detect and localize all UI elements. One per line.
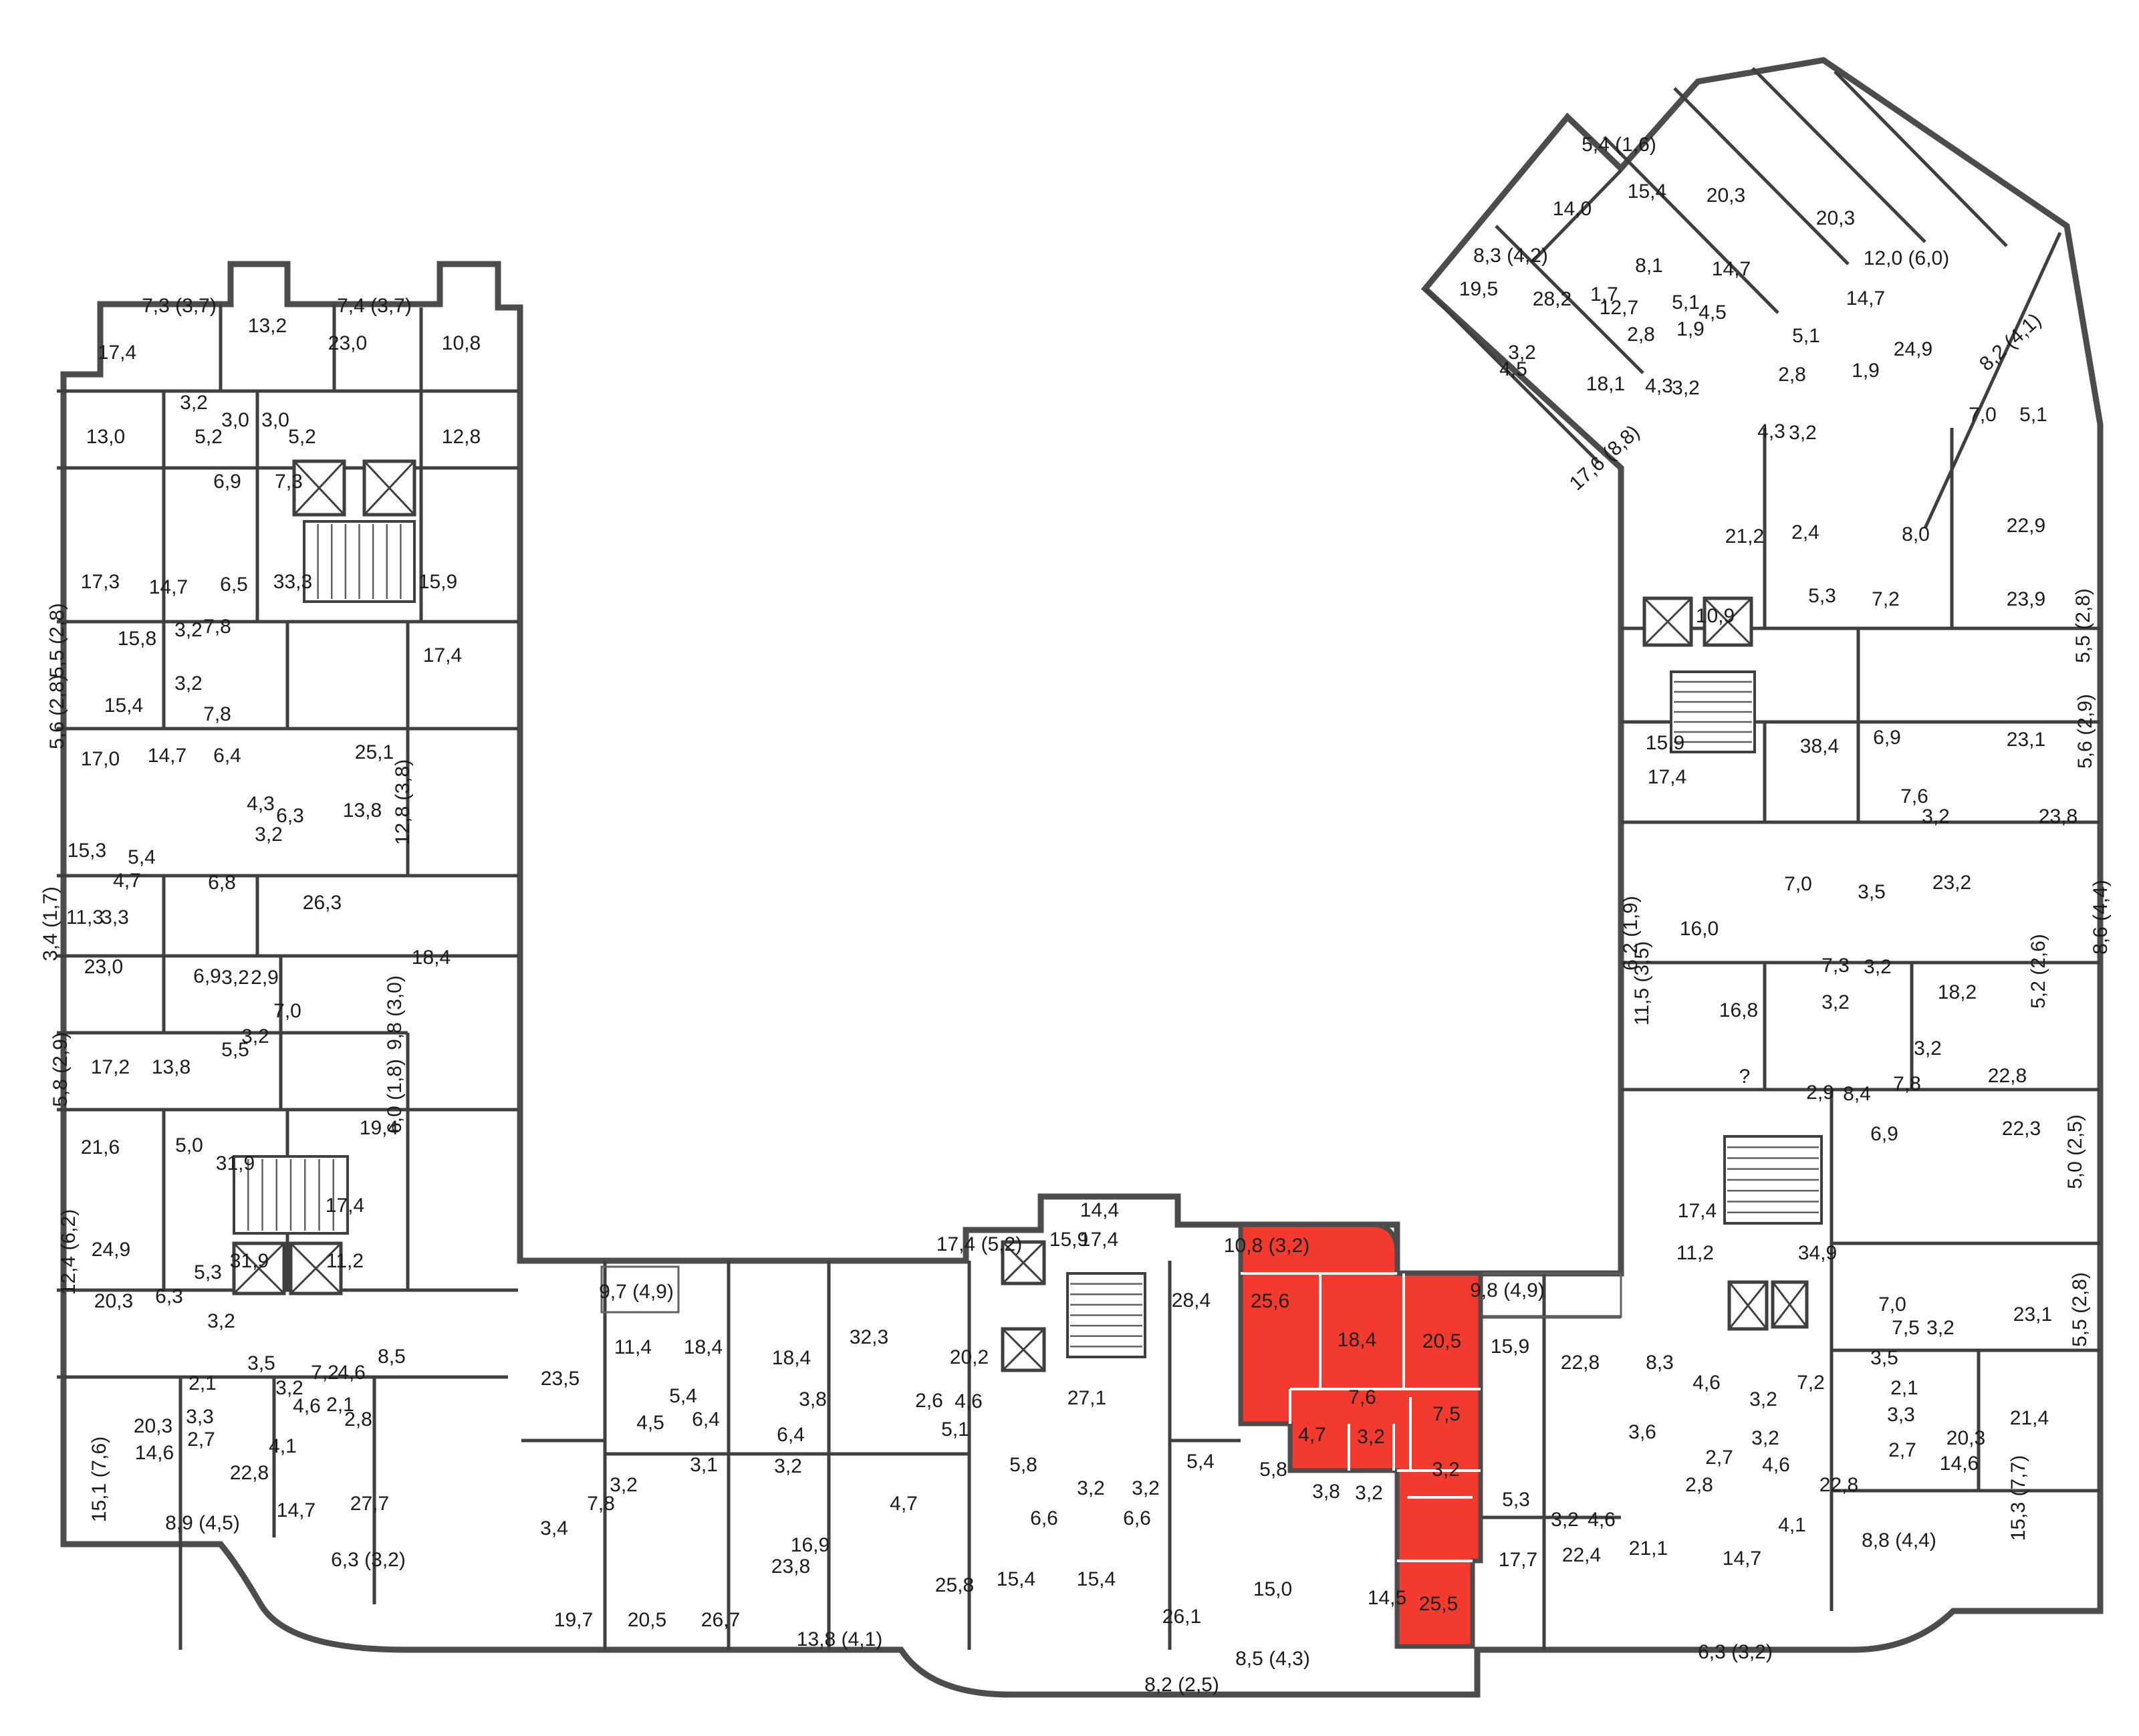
room-area-label-highlighted: 4,7 [1298,1424,1326,1446]
room-area-label: 3,1 [690,1454,718,1476]
room-area-label: 4,6 [293,1395,321,1417]
room-area-label: 3,2 [207,1310,235,1332]
room-area-label: 18,4 [772,1347,811,1369]
room-area-label: 15,4 [1628,180,1666,203]
room-area-label: 14,5 [1368,1587,1406,1609]
room-area-label: 4,3 [1757,420,1785,443]
room-area-label: 21,1 [1629,1537,1668,1560]
room-area-label: 14,6 [1940,1453,1979,1475]
room-area-label: 5,2 (2,6) [2027,934,2049,1009]
room-area-label: 15,8 [118,628,156,650]
room-area-label: 6,4 [213,745,241,767]
room-area-label: 23,9 [2007,588,2045,610]
room-area-label: 26,7 [701,1609,740,1631]
room-area-label: 19,4 [360,1117,398,1139]
room-area-label: 2,4 [1791,521,1819,543]
room-area-label: 17,4 (5,2) [936,1233,1022,1255]
room-area-label: 28,4 [1172,1289,1211,1312]
room-area-label: 34,9 [1798,1242,1837,1264]
room-area-label: 16,9 [791,1534,830,1556]
room-area-label: 25,8 [935,1574,974,1596]
room-area-label: 12,8 (3,8) [392,759,414,845]
room-area-label-highlighted: 3,2 [1432,1459,1460,1481]
room-area-label: 21,6 [81,1136,120,1158]
room-area-label: 5,1 [2019,404,2047,426]
room-area-label: 5,5 (2,8) [2072,588,2094,663]
room-area-label: 7,0 [1969,404,1997,426]
room-area-label: 11,2 [326,1250,364,1272]
room-area-label: 23,0 [84,956,123,978]
room-area-label: 4,3 [247,793,275,815]
room-area-label: 2,6 [915,1390,943,1412]
room-area-label: 3,2 [1672,377,1700,399]
room-area-label: 3,2 [1751,1427,1779,1449]
room-area-label: 17,7 [1499,1549,1537,1571]
room-area-label: 5,0 (2,5) [2064,1114,2086,1189]
room-area-label: 14,7 [277,1499,316,1521]
room-area-label: 8,4 [1843,1083,1871,1105]
room-area-label: 3,2 [1077,1477,1105,1499]
room-area-label: 17,3 [81,571,120,593]
room-area-label: 32,3 [850,1326,888,1348]
room-area-label: 3,2 [774,1455,802,1477]
room-area-label: 5,5 [221,1039,249,1061]
room-area-label: 6,9 [1870,1123,1898,1145]
room-area-label: 15,9 [418,571,457,593]
room-area-label: 4,3 [1645,375,1673,397]
room-area-label: 1,7 [1590,283,1618,305]
room-area-label: 17,4 [1080,1229,1118,1251]
room-area-label-highlighted: 25,6 [1251,1290,1289,1312]
room-area-label: 2,9 [1806,1082,1834,1104]
room-area-label: 38,4 [1800,735,1839,757]
room-area-label: 2,8 [1685,1474,1713,1496]
room-area-label: 21,4 [2010,1407,2049,1429]
room-area-label: 2,8 [1778,364,1806,386]
room-area-label: 3,2 [1821,991,1850,1013]
room-area-label: 13,8 (4,1) [797,1628,882,1650]
room-area-label: 6,9 [1873,727,1901,749]
room-area-label: 3,3 [1887,1404,1915,1426]
room-area-label: 25,1 [355,741,394,763]
room-area-label: 9,8 (4,9) [1470,1279,1545,1301]
room-area-label: 5,5 (2,8) [46,603,68,678]
room-area-label: 7,2 [311,1362,339,1384]
room-area-label: 2,1 [1890,1377,1918,1399]
room-area-label: 11,4 [614,1336,652,1358]
room-area-label: 4,6 [1588,1509,1616,1531]
room-area-label-highlighted: 25,5 [1419,1593,1458,1615]
room-area-label: 7,3 (3,7) [142,295,217,317]
room-area-label: 12,0 (6,0) [1864,247,1949,269]
room-area-label: 3,2 [180,392,208,414]
room-area-label: 5,1 [941,1418,969,1441]
room-area-label: 19,7 [554,1609,593,1631]
room-area-label: 13,8 [152,1056,191,1078]
room-area-label: 6,6 [1123,1507,1151,1529]
room-area-label: 17,4 [1678,1200,1717,1222]
room-area-label: 14,7 [1846,287,1885,309]
room-area-label: 6,3 [155,1285,183,1308]
room-area-label: 5,4 [1186,1451,1215,1473]
room-area-label: 3,0 [221,409,249,431]
room-area-label: 24,9 [1894,338,1932,360]
room-area-label: 27,1 [1067,1387,1106,1409]
room-area-label: 8,5 [378,1346,406,1368]
room-area-label: 14,7 [148,745,186,767]
room-area-label: 5,6 (2,9) [2074,694,2096,769]
room-area-label: 6,9 [193,965,221,987]
room-area-label: 13,2 [248,315,287,337]
room-area-label: 31,9 [230,1250,269,1272]
room-area-label: 33,3 [273,571,312,593]
room-area-label: 23,1 [2007,729,2045,751]
room-area-label: 27,7 [350,1493,389,1515]
room-area-label: 20,3 [1816,207,1855,229]
room-area-label: 8,3 [1646,1352,1674,1374]
room-area-label: 15,1 (7,6) [88,1437,110,1522]
room-area-label: 2,7 [1888,1439,1916,1461]
room-area-label: 23,8 [2039,805,2078,828]
floor-plan-page: 7,3 (3,7)13,27,4 (3,7)23,017,410,83,23,0… [0,0,2139,1736]
room-area-label-highlighted: 7,6 [1348,1386,1376,1408]
room-area-label: 8,5 (4,3) [1235,1648,1310,1670]
room-area-label: 18,1 [1586,373,1625,395]
room-area-label: 5,4 (1,6) [1582,134,1656,156]
room-area-label: 15,3 (7,7) [2007,1455,2029,1541]
room-area-label: 15,4 [104,695,143,717]
room-area-label: 20,3 [1946,1427,1985,1449]
room-area-label: 15,9 [1491,1336,1529,1358]
room-area-label: 3,5 [1870,1347,1898,1369]
room-area-label: 3,3 [101,906,129,928]
room-area-label: 17,4 [1648,766,1686,788]
room-area-label: 3,2 [174,672,203,695]
room-area-label: 8,6 (4,4) [2090,880,2112,955]
room-area-label: 7,2 [1797,1372,1825,1394]
room-area-label: 14,7 [1723,1547,1761,1570]
room-area-label: 5,2 [288,426,316,448]
room-area-label: 6,4 [777,1424,805,1446]
room-area-label: 7,3 [1821,955,1850,977]
room-area-label: 14,4 [1080,1199,1119,1221]
room-area-label: 7,8 [587,1493,615,1515]
room-area-label: 3,2 [1749,1388,1777,1410]
room-area-label: ? [1739,1066,1751,1088]
room-area-label: 24,9 [92,1239,130,1261]
room-area-label: 17,4 [423,644,462,666]
room-area-label: 5,6 (2,8) [46,674,68,749]
room-area-label: 4,6 [955,1390,983,1412]
room-area-label: 5,3 [1502,1489,1530,1511]
room-area-label: 4,5 [1499,358,1527,380]
room-area-label: 7,3 [275,471,303,493]
room-area-label: 8,8 (4,4) [1862,1529,1936,1552]
room-area-label: 4,5 [636,1412,664,1434]
room-area-label: 4,1 [269,1435,297,1457]
room-area-label: 20,3 [94,1290,133,1312]
room-area-label: 4,6 [338,1362,366,1384]
room-area-label: 3,2 [1922,805,1950,828]
room-area-label: 4,7 [113,870,141,892]
room-area-label: 6,4 [692,1408,720,1431]
room-area-label: 3,6 [1628,1421,1656,1443]
room-area-label: 3,2 [1355,1482,1383,1504]
room-area-label: 28,2 [1533,288,1571,310]
room-area-label: 6,5 [220,574,248,596]
room-area-label: 3,5 [1858,881,1886,903]
room-area-label: 31,9 [216,1152,255,1174]
room-area-label: 5,3 [1808,585,1836,607]
room-area-label: 23,2 [1932,872,1971,894]
room-area-label: 3,8 [799,1388,827,1410]
room-area-label: 1,9 [1852,360,1880,382]
room-area-label: 13,0 [86,426,125,448]
room-area-label: 22,8 [230,1462,269,1484]
room-area-label: 20,3 [134,1415,172,1437]
room-area-label: 5,8 [1259,1459,1287,1481]
room-area-label: 3,2 [1864,956,1892,978]
room-area-label: 7,6 [1900,785,1928,808]
floor-plan-drawing: 7,3 (3,7)13,27,4 (3,7)23,017,410,83,23,0… [0,0,2139,1736]
room-area-label: 15,0 [1253,1578,1292,1600]
room-area-label: 2,8 [1627,324,1655,346]
room-area-label: 15,4 [997,1568,1035,1590]
room-area-label: 2,8 [344,1408,372,1431]
room-area-label: 14,0 [1553,198,1592,220]
room-area-label: 3,4 [540,1517,568,1539]
room-area-label: 5,4 [128,846,156,868]
room-area-label: 17,4 [98,342,136,364]
room-area-label: 12,4 (6,2) [57,1209,80,1295]
room-area-label: 2,9 [251,967,279,989]
room-area-label: 6,8 [208,872,236,894]
room-area-label: 15,4 [1077,1568,1116,1590]
room-area-label: 14,7 [149,576,188,598]
room-area-label: 7,4 (3,7) [337,295,412,317]
room-area-label: 4,6 [1762,1454,1790,1476]
room-area-label: 5,8 [1009,1454,1037,1476]
room-area-label: 6,2 (1,9) [1620,896,1642,971]
room-area-label: 13,8 [343,799,382,822]
room-area-label: 17,2 [91,1056,130,1078]
room-area-label: 20,3 [1707,184,1745,207]
room-area-label: 7,0 [273,1000,301,1022]
room-area-label: 3,2 [174,619,203,641]
room-area-label-highlighted: 20,5 [1422,1330,1461,1352]
room-area-label: 5,0 [175,1134,203,1156]
room-area-label: 15,3 [68,840,106,862]
room-area-label: 18,4 [412,947,451,969]
room-area-label: 14,6 [135,1442,174,1464]
room-area-label: 23,1 [2013,1304,2052,1326]
room-area-label: 8,9 (4,5) [165,1512,240,1534]
room-area-label: 3,3 [186,1406,214,1428]
room-area-label: 3,2 [1551,1509,1579,1531]
room-area-label: 3,2 [1132,1477,1160,1499]
room-area-label: 4,6 [1692,1372,1721,1394]
room-area-label-highlighted: 7,5 [1432,1403,1461,1425]
room-area-label: 6,3 (3,2) [331,1549,406,1571]
room-area-label: 3,5 [247,1352,275,1374]
room-area-label: 8,1 [1635,255,1663,277]
room-area-label: 4,1 [1778,1514,1806,1536]
room-area-label: 26,1 [1162,1606,1201,1628]
room-area-label: 23,0 [328,332,367,354]
room-area-label: 5,2 [195,426,223,448]
room-area-label: 6,9 [213,471,241,493]
room-area-label: 8,2 (2,5) [1144,1674,1219,1696]
room-area-label: 6,6 [1030,1507,1058,1529]
room-area-label: 5,3 [194,1261,222,1283]
room-area-label: 19,5 [1459,278,1498,300]
room-area-label: 10,9 [1696,605,1735,627]
room-area-label: 22,9 [2007,515,2045,537]
room-area-label: 3,0 [261,409,289,431]
room-area-label: 9,7 (4,9) [599,1281,674,1303]
room-area-label: 7,8 [203,703,231,725]
room-area-label: 17,0 [81,748,120,770]
room-area-label: 21,2 [1725,525,1764,547]
room-area-label-highlighted: 3,2 [1357,1426,1385,1448]
room-area-label: 22,4 [1562,1544,1601,1566]
room-area-label: 1,9 [1676,318,1705,340]
room-area-label: 22,8 [1819,1474,1858,1496]
room-area-label: 2,1 [188,1372,217,1394]
room-area-label: 15,9 [1646,732,1684,754]
room-area-label: 3,2 [1789,422,1817,444]
room-area-label: 17,4 [326,1195,364,1217]
room-area-label: 3,2 [1914,1037,1942,1060]
room-area-label: 10,8 [442,332,481,354]
room-area-label: 18,4 [684,1336,723,1358]
room-area-label: 26,3 [303,892,342,914]
room-area-label: 8,3 (4,2) [1473,245,1548,267]
room-area-label: 8,0 [1902,523,1930,545]
room-area-label: 12,8 [442,426,481,448]
room-area-label: 22,8 [1561,1352,1600,1374]
room-area-label: 14,7 [1712,258,1751,280]
room-area-label: 3,8 [1312,1481,1340,1503]
room-area-label: 18,2 [1938,981,1977,1003]
room-area-label: 11,3 [66,906,104,928]
room-area-label: 4,7 [890,1493,918,1515]
room-area-label: 20,5 [628,1609,666,1631]
room-area-label: 7,2 [1872,588,1900,610]
room-area-label: 2,7 [1705,1447,1733,1469]
room-area-label: 7,8 [1893,1073,1921,1095]
room-area-label: 5,1 [1672,291,1700,314]
room-area-label: 3,2 [255,824,283,846]
room-area-label: 22,8 [1988,1065,2027,1087]
room-area-label: 5,8 (2,9) [49,1032,72,1107]
room-area-label: 3,2 [221,967,249,989]
room-area-label: 16,8 [1719,999,1758,1021]
room-area-label: 3,4 (1,7) [39,886,61,961]
room-area-label: 22,3 [2002,1118,2041,1140]
room-area-label: 23,5 [541,1368,580,1390]
room-area-label: 7,0 [1878,1293,1906,1316]
room-area-label: 3,2 [1926,1317,1955,1339]
room-area-label: 5,5 (2,8) [2069,1272,2091,1347]
room-area-label: 2,7 [187,1429,215,1451]
room-area-label: 9,8 (3,0) [384,975,406,1050]
room-area-label: 16,0 [1680,918,1719,940]
room-area-label: 11,2 [1676,1242,1714,1264]
room-area-label: 5,1 [1792,325,1820,347]
room-area-label: 5,4 [669,1385,697,1407]
room-area-label: 6,3 (3,2) [1698,1641,1773,1663]
room-area-label: 23,8 [771,1556,810,1578]
room-area-label: 7,8 [203,616,231,638]
room-area-label-highlighted: 18,4 [1338,1329,1376,1351]
room-area-label: 7,5 [1892,1317,1920,1339]
room-area-label-highlighted: 10,8 (3,2) [1224,1235,1309,1257]
room-area-label: 7,0 [1784,873,1812,895]
room-area-label: 20,2 [950,1346,989,1368]
